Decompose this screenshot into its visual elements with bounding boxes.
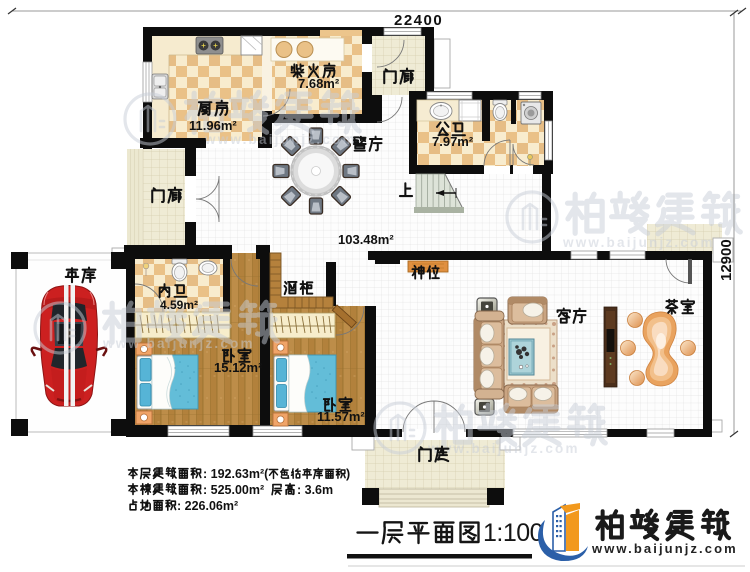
svg-text:7.97m²: 7.97m²: [432, 134, 474, 149]
svg-text:: 3.6m: : 3.6m: [297, 483, 333, 497]
svg-text:: 525.00m²: : 525.00m²: [203, 483, 264, 497]
svg-text:15.12m²: 15.12m²: [214, 360, 263, 375]
svg-text:11.96m²: 11.96m²: [189, 118, 237, 133]
svg-text:www.baijunjz.com: www.baijunjz.com: [427, 441, 580, 456]
svg-text:103.48m²: 103.48m²: [338, 232, 394, 247]
svg-text:1:100: 1:100: [483, 519, 543, 547]
svg-text:7.68m²: 7.68m²: [298, 76, 340, 91]
svg-text:): ): [346, 467, 350, 481]
svg-text:4.59m²: 4.59m²: [160, 298, 198, 312]
svg-text:11.57m²: 11.57m²: [317, 409, 365, 424]
svg-text:: 226.06m²: : 226.06m²: [177, 499, 238, 513]
svg-text:22400: 22400: [394, 12, 443, 29]
svg-text:www.baijunjz.com: www.baijunjz.com: [591, 541, 738, 556]
svg-text:www.baijunjz.com: www.baijunjz.com: [562, 235, 715, 250]
svg-text:: 192.63m²(: : 192.63m²(: [203, 467, 269, 481]
svg-text:www.baijunjz.com: www.baijunjz.com: [204, 132, 357, 147]
svg-text:12900: 12900: [718, 239, 735, 281]
